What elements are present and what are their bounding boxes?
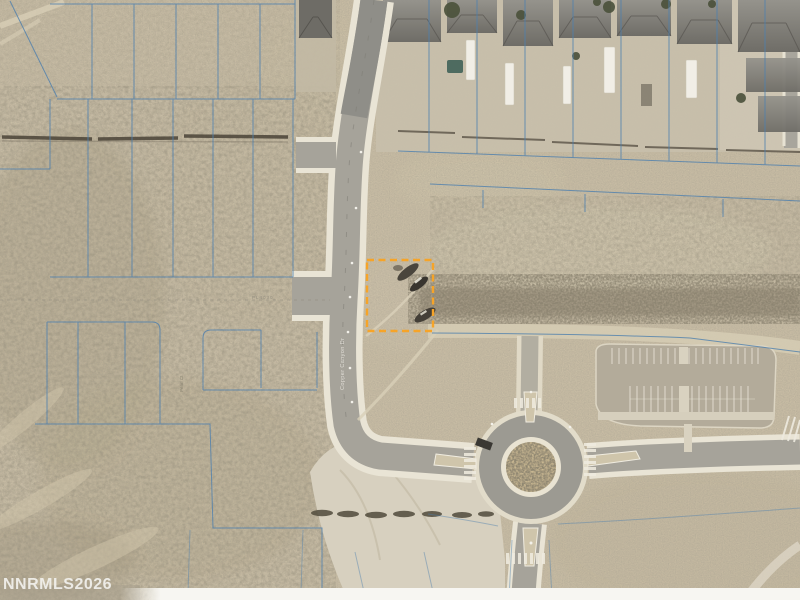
street-label-plat: Pearl Ct	[179, 375, 184, 392]
brush-band	[408, 274, 800, 324]
aerial-map-canvas: Copper Canyon Dr Pearl Ct PL4030 NNRMLS2…	[0, 0, 800, 600]
parking-south-walkway	[598, 412, 774, 420]
walkway-gap-middle	[679, 386, 689, 414]
pool	[447, 60, 463, 73]
parcel-plat-note: PL4030	[252, 295, 274, 300]
debris	[393, 265, 403, 271]
walkway-stub	[684, 424, 692, 452]
vegetation-speckle-topleft	[0, 0, 340, 88]
street-label-main-road: Copper Canyon Dr	[340, 338, 346, 390]
photo-bottom-white-band	[120, 588, 800, 600]
walkway-gap-top	[679, 347, 688, 364]
mls-watermark: NNRMLS2026	[3, 576, 112, 593]
vegetation-speckle-slope	[430, 196, 800, 280]
island-landscaping	[506, 442, 556, 492]
shed	[641, 84, 652, 106]
aerial-listing-photo[interactable]: Copper Canyon Dr Pearl Ct PL4030 NNRMLS2…	[0, 0, 800, 600]
